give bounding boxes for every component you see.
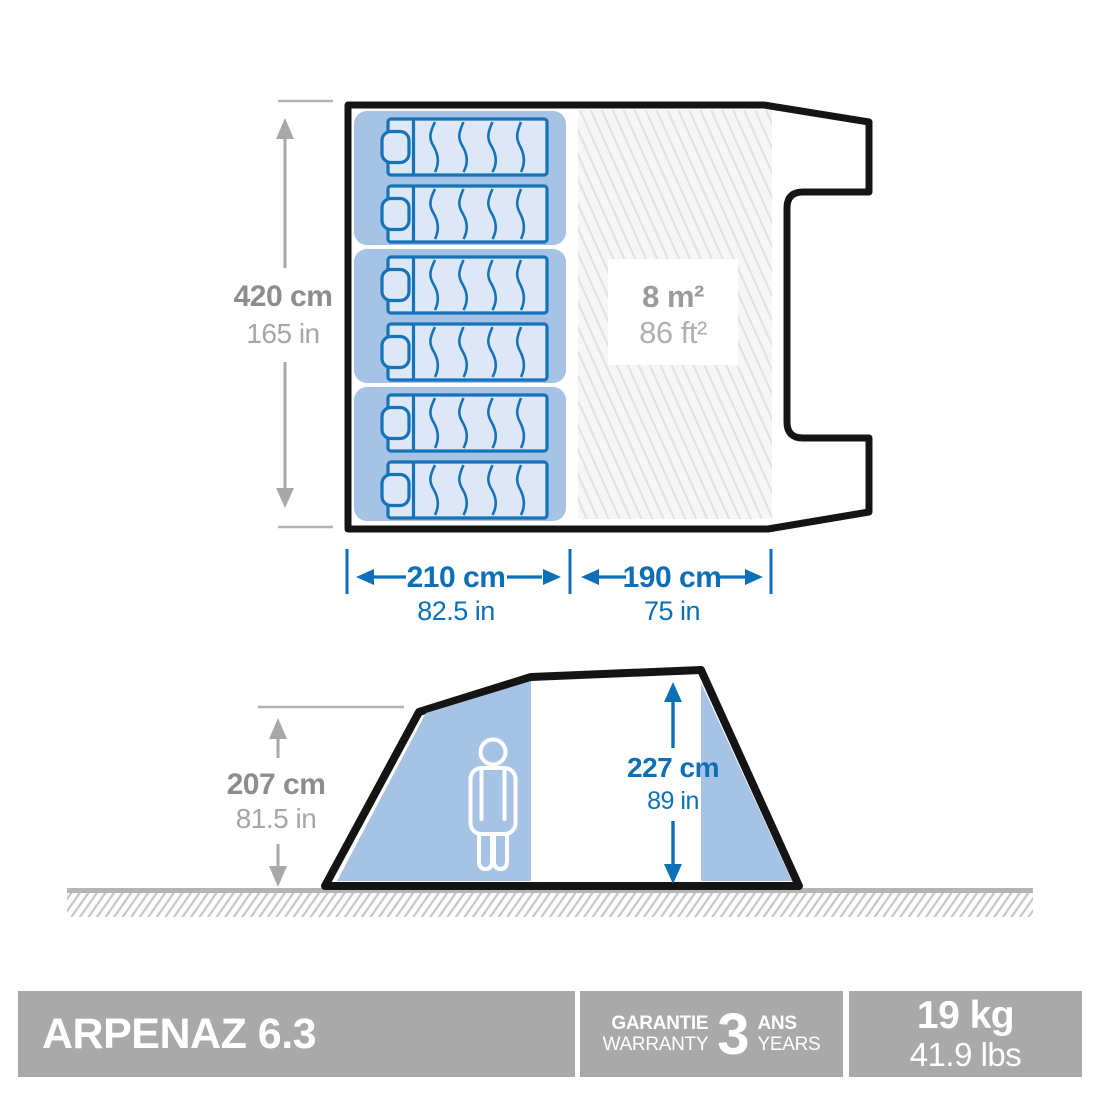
dimension-bedroom-width: 210 cm 82.5 in: [347, 549, 570, 626]
bedroom-width-cm: 210 cm: [407, 561, 506, 594]
warranty-label-en: WARRANTY: [603, 1034, 709, 1055]
warranty-unit-fr: ANS: [757, 1013, 796, 1034]
tent-side-view: 207 cm 81.5 in 227 cm 89 in: [67, 670, 1033, 917]
sleeping-mat-icon: [382, 395, 547, 451]
arrow-up-icon: [269, 718, 287, 739]
exterior-height-in: 81.5 in: [236, 803, 317, 834]
interior-height-cm: 227 cm: [627, 752, 719, 783]
sleeping-mat-icon: [382, 186, 547, 242]
sleeping-mat-icon: [382, 119, 547, 175]
living-area-m2: 8 m²: [642, 279, 704, 314]
length-in: 165 in: [246, 318, 319, 349]
weight-kg: 19 kg: [917, 995, 1014, 1037]
warranty-labels: GARANTIE WARRANTY: [603, 1013, 709, 1056]
bedroom-width-in: 82.5 in: [417, 596, 495, 626]
bedroom-panel-left: [337, 681, 531, 881]
dimension-length: 420 cm 165 in: [234, 101, 333, 527]
sleeping-mat-icon: [382, 462, 547, 518]
sleeping-mat-icon: [382, 324, 547, 380]
arrow-right-icon: [543, 569, 561, 585]
tent-top-view: 8 m² 86 ft² 420 cm 165 in 210 cm 82.5 in: [234, 101, 869, 626]
arrow-up-icon: [276, 118, 294, 139]
living-area-ft2: 86 ft²: [639, 315, 707, 350]
exterior-height-cm: 207 cm: [227, 768, 326, 801]
dimension-living-width: 190 cm 75 in: [581, 549, 771, 626]
interior-height-in: 89 in: [647, 787, 699, 815]
warranty-unit-en: YEARS: [757, 1034, 820, 1055]
weight-lbs: 41.9 lbs: [910, 1037, 1022, 1073]
ground-hatch: [67, 893, 1033, 917]
product-name: ARPENAZ 6.3: [42, 1010, 316, 1059]
living-width-cm: 190 cm: [623, 561, 722, 594]
length-cm: 420 cm: [234, 280, 333, 313]
tent-spec-infographic: 8 m² 86 ft² 420 cm 165 in 210 cm 82.5 in: [0, 0, 1100, 1100]
dimension-diagram: 8 m² 86 ft² 420 cm 165 in 210 cm 82.5 in: [0, 0, 1100, 1100]
warranty-label-fr: GARANTIE: [611, 1013, 708, 1034]
warranty-years-value: 3: [717, 1001, 748, 1068]
living-width-in: 75 in: [644, 596, 700, 626]
warranty-banner: GARANTIE WARRANTY 3 ANS YEARS: [580, 991, 843, 1077]
weight-banner: 19 kg 41.9 lbs: [849, 991, 1082, 1077]
sleeping-mat-icon: [382, 257, 547, 313]
arrow-down-icon: [276, 488, 294, 508]
arrow-down-icon: [269, 866, 287, 887]
warranty-units: ANS YEARS: [757, 1013, 820, 1056]
product-name-banner: ARPENAZ 6.3: [18, 991, 575, 1077]
bedroom-area: [354, 111, 566, 521]
arrow-right-icon: [745, 569, 763, 585]
